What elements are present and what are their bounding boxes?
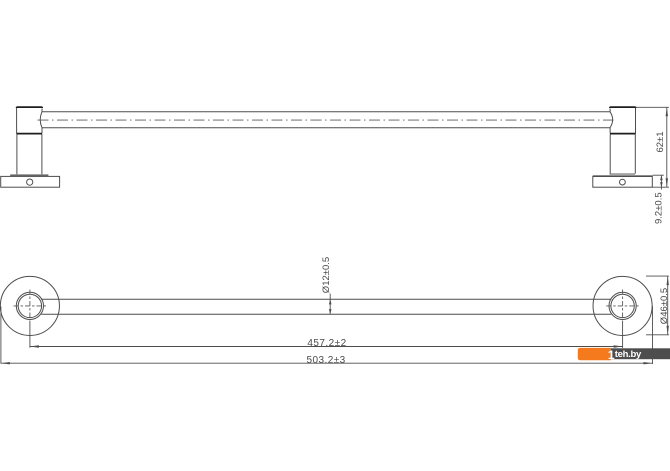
svg-text:teh.by: teh.by [615,349,642,360]
svg-text:503.2±3: 503.2±3 [306,355,345,366]
svg-text:9.2±0.5: 9.2±0.5 [653,192,664,224]
svg-text:Ø46±0.5: Ø46±0.5 [659,288,670,324]
svg-text:457.2±2: 457.2±2 [307,338,346,349]
svg-text:Ø12±0.5: Ø12±0.5 [321,257,332,293]
svg-text:62±1: 62±1 [655,131,666,152]
